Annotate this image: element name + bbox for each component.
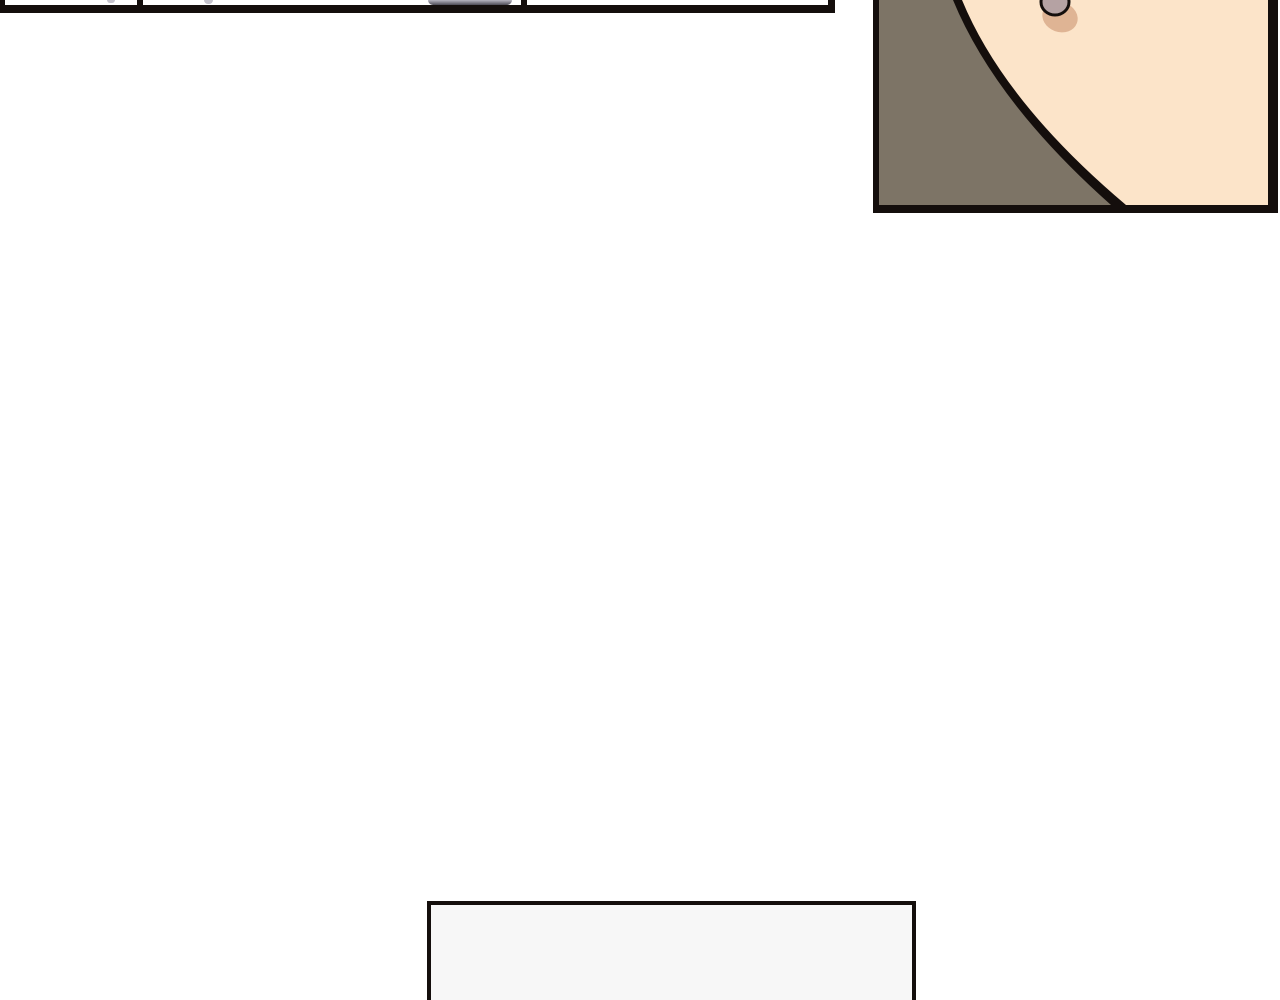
panel-art-speck [107, 0, 115, 3]
comic-page [0, 0, 1280, 1000]
face-closeup-panel [873, 0, 1278, 213]
face-closeup-art [879, 0, 1268, 205]
nose-oval [1041, 0, 1069, 15]
empty-caption-box [427, 901, 916, 1000]
panel-border-bottom [0, 5, 835, 13]
panel-art-speck [204, 0, 213, 4]
comic-row-bottom-sliver [0, 0, 835, 13]
